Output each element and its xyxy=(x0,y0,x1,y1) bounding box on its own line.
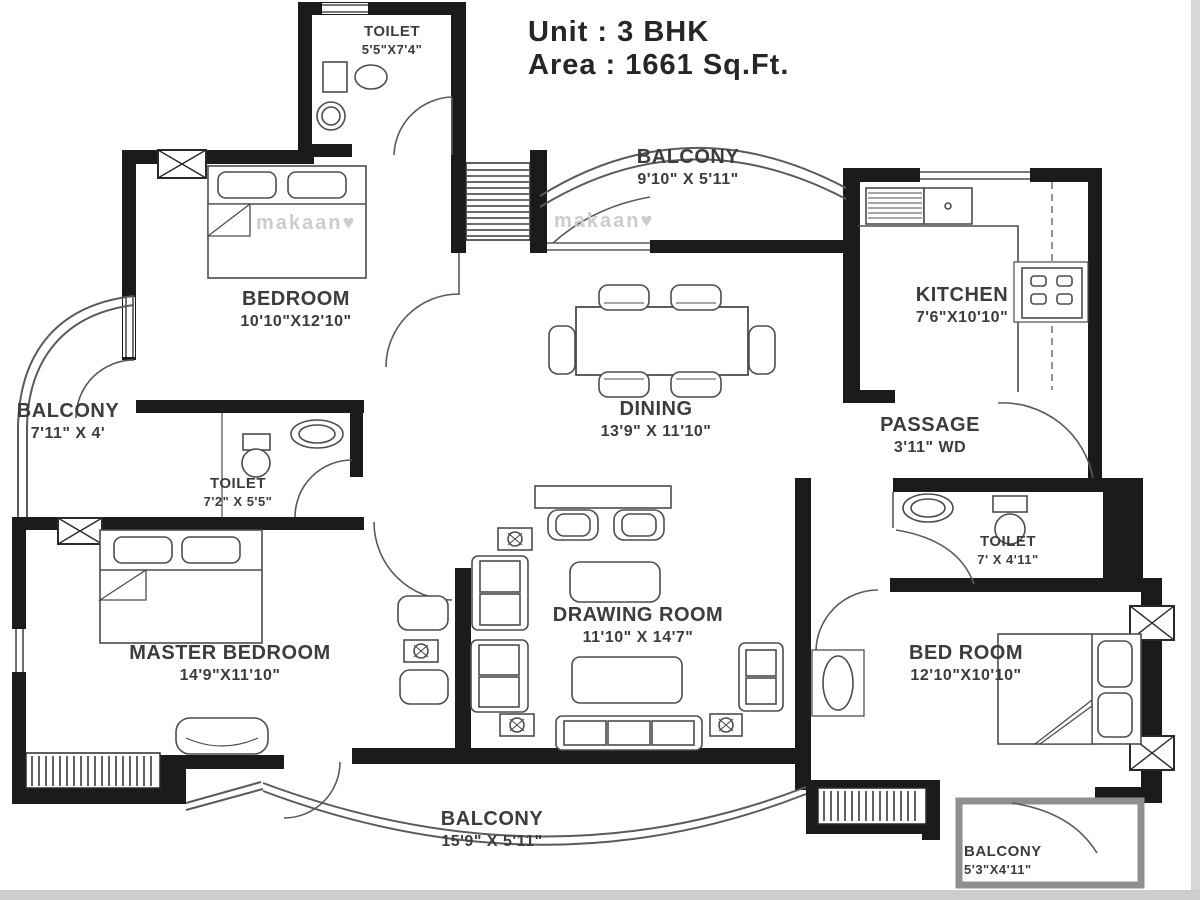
room-label-toilet-top: TOILET5'5"X7'4" xyxy=(362,22,423,58)
room-label-dining: DINING13'9" X 11'10" xyxy=(601,396,712,443)
wall-layer xyxy=(12,2,1162,840)
door-bed-room xyxy=(816,590,878,652)
hatch-areas xyxy=(26,163,926,824)
duct-shaft xyxy=(466,163,530,240)
area-label: Area : 1661 Sq.Ft. xyxy=(528,49,789,82)
door-toilet-top xyxy=(394,97,452,155)
planter-left xyxy=(26,753,160,788)
photo-edge-right xyxy=(1191,0,1200,900)
room-label-passage: PASSAGE3'11" WD xyxy=(880,412,980,459)
wc-icon xyxy=(323,62,387,92)
room-label-drawing-room: DRAWING ROOM11'10" X 14'7" xyxy=(553,602,723,649)
unit-label: Unit : 3 BHK xyxy=(528,16,789,49)
door-kitchen xyxy=(998,403,1093,478)
master-bed-icon xyxy=(100,530,262,643)
photo-edge-bottom xyxy=(0,890,1200,900)
plan-title: Unit : 3 BHK Area : 1661 Sq.Ft. xyxy=(528,16,789,83)
room-label-toilet-right: TOILET7' X 4'11" xyxy=(977,532,1038,568)
door-master-bedroom xyxy=(374,522,452,600)
room-label-balcony-bottom-right: BALCONY5'3"X4'11" xyxy=(964,842,1042,878)
room-label-bed-room: BED ROOM12'10"X10'10" xyxy=(909,640,1023,687)
room-label-toilet-mid: TOILET7'2" X 5'5" xyxy=(204,474,273,510)
window-icon xyxy=(158,150,206,178)
room-label-kitchen: KITCHEN7'6"X10'10" xyxy=(916,282,1008,329)
watermark-logo: makaan♥ xyxy=(256,212,356,235)
floor-plan-page: Unit : 3 BHK Area : 1661 Sq.Ft. makaan♥ … xyxy=(0,0,1200,900)
room-label-bedroom: BEDROOM10'10"X12'10" xyxy=(240,286,351,333)
room-label-master-bedroom: MASTER BEDROOM14'9"X11'10" xyxy=(129,640,330,687)
room-label-balcony-bottom: BALCONY15'9" X 5'11" xyxy=(441,806,543,853)
door-master-balcony xyxy=(284,762,340,818)
dining-table-icon xyxy=(549,285,775,397)
door-bedroom xyxy=(386,253,459,367)
entry-threshold xyxy=(547,243,650,250)
room-label-balcony-left: BALCONY7'11" X 4' xyxy=(17,398,119,445)
room-label-balcony-top: BALCONY9'10" X 5'11" xyxy=(637,144,739,191)
floor-plan-drawing xyxy=(0,0,1200,900)
door-toilet-mid xyxy=(295,460,352,517)
washbasin-icon xyxy=(317,102,345,130)
shaft-icon xyxy=(812,650,864,716)
window-icon xyxy=(58,518,102,544)
watermark-logo: makaan♥ xyxy=(554,210,654,233)
planter-right xyxy=(818,788,926,824)
